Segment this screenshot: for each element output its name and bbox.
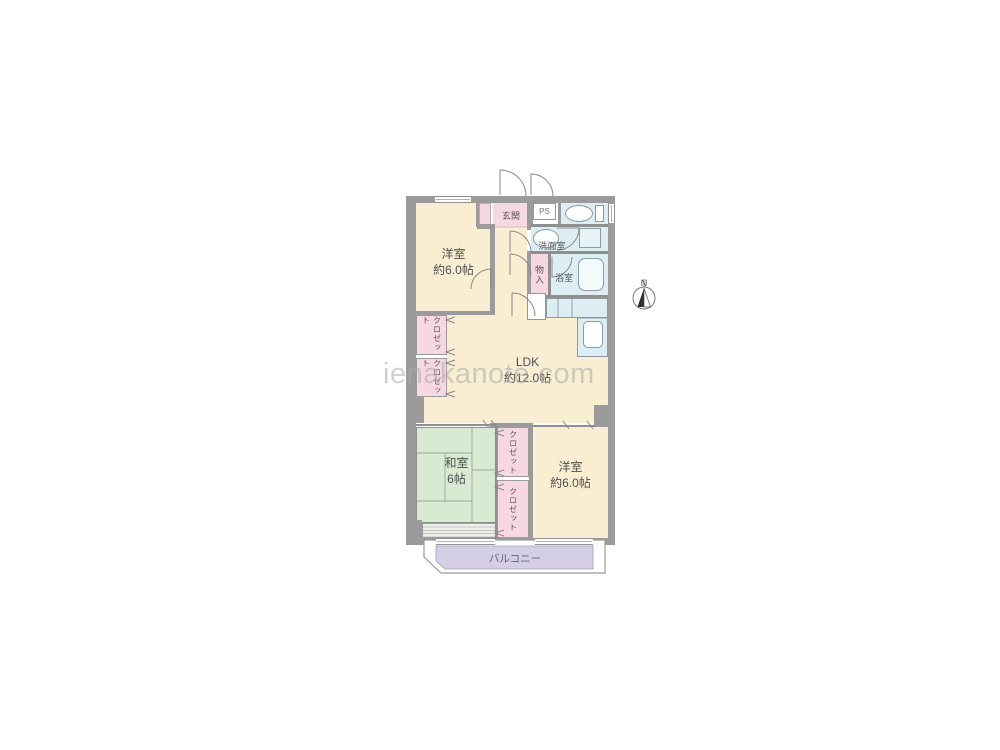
closet-fold-icon	[446, 391, 455, 397]
balcony-label: バルコニー	[465, 551, 565, 566]
entry-door2-swing-icon	[531, 174, 553, 196]
bedroom-nw-label: 洋室 約6.0帖	[416, 246, 491, 280]
closet-se-lower-label: クロゼット	[498, 481, 528, 537]
hall-door2-icon	[510, 254, 531, 275]
storage-label: 物入	[531, 256, 548, 293]
bedroomse-opening-ticks	[563, 421, 593, 429]
compass-icon: N	[626, 266, 666, 318]
bedroom-se-label: 洋室 約6.0帖	[533, 456, 608, 496]
entrance-label: 玄関	[493, 209, 529, 222]
counter-dividers	[558, 299, 607, 318]
japanese-room-label: 和室 6帖	[416, 452, 497, 492]
washitsu-opening-ticks	[483, 420, 497, 428]
ldk-door-icon	[512, 293, 535, 316]
entry-door-swing-icon	[500, 170, 526, 196]
ps-label: PS	[533, 207, 556, 216]
site-watermark: ienakanote.com	[383, 358, 643, 390]
bathroom-label: 浴室	[546, 271, 582, 284]
closet-fold-icon	[446, 317, 455, 323]
floorplan-canvas: バルコニー N 洋室 約6.0帖 LDK 約12.0帖 和室 6帖 洋室 約6.…	[0, 0, 1000, 750]
washroom-label: 洗面室	[527, 239, 577, 252]
closet-nw-1-label: クロゼット	[417, 316, 446, 354]
closet-se-upper-label: クロゼット	[498, 428, 528, 476]
